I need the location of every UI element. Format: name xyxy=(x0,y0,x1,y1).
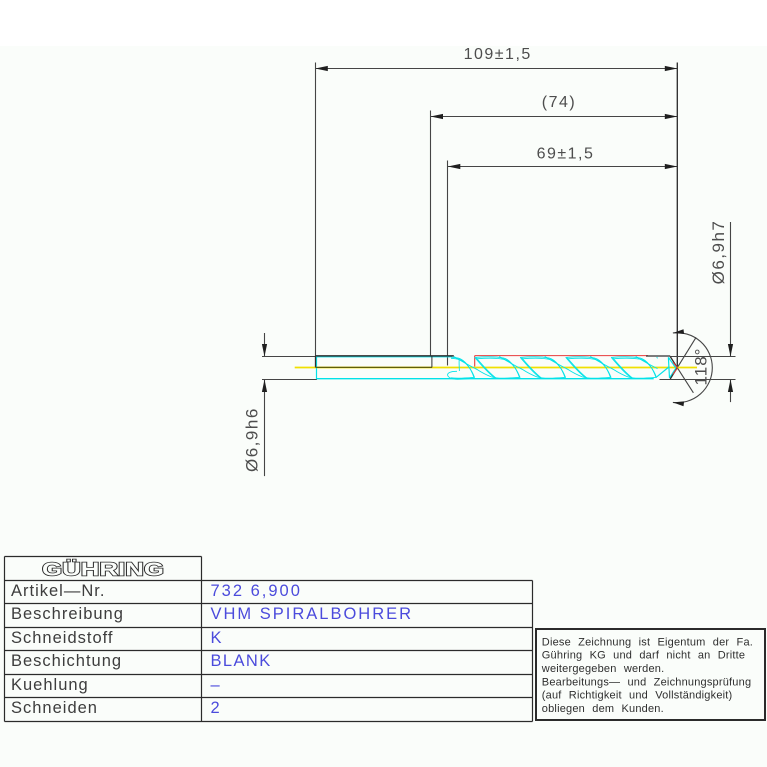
svg-text:VHM SPIRALBOHRER: VHM SPIRALBOHRER xyxy=(211,605,414,623)
svg-text:Kuehlung: Kuehlung xyxy=(11,676,89,694)
svg-text:118°: 118° xyxy=(692,348,711,386)
svg-text:109±1,5: 109±1,5 xyxy=(464,46,532,63)
svg-text:BLANK: BLANK xyxy=(211,652,272,670)
svg-text:Beschreibung: Beschreibung xyxy=(11,605,124,623)
svg-text:Beschichtung: Beschichtung xyxy=(11,652,122,670)
svg-text:Bearbeitungs— und Zeichnungspr: Bearbeitungs— und Zeichnungsprüfung xyxy=(542,676,751,688)
svg-text:Gühring KG und darf nicht an D: Gühring KG und darf nicht an Dritte xyxy=(542,650,745,662)
svg-text:Artikel—Nr.: Artikel—Nr. xyxy=(11,582,105,600)
svg-text:(auf Richtigkeit und Vollständ: (auf Richtigkeit und Vollständigkeit) xyxy=(542,690,733,702)
svg-text:K: K xyxy=(211,629,223,647)
svg-text:GÜHRING: GÜHRING xyxy=(42,559,164,580)
svg-text:2: 2 xyxy=(211,699,222,717)
svg-text:69±1,5: 69±1,5 xyxy=(537,146,595,163)
svg-text:Diese Zeichnung ist Eigentum d: Diese Zeichnung ist Eigentum der Fa. xyxy=(542,636,753,648)
svg-text:–: – xyxy=(211,676,222,694)
svg-text:Ø6,9h7: Ø6,9h7 xyxy=(709,220,728,285)
svg-text:obliegen dem Kunden.: obliegen dem Kunden. xyxy=(542,703,664,715)
svg-text:weitergegeben werden.: weitergegeben werden. xyxy=(541,663,665,675)
svg-text:(74): (74) xyxy=(542,94,576,111)
svg-text:Schneidstoff: Schneidstoff xyxy=(11,629,114,647)
svg-text:732 6,900: 732 6,900 xyxy=(211,582,302,600)
svg-text:Schneiden: Schneiden xyxy=(11,699,98,717)
svg-text:Ø6,9h6: Ø6,9h6 xyxy=(243,407,262,472)
